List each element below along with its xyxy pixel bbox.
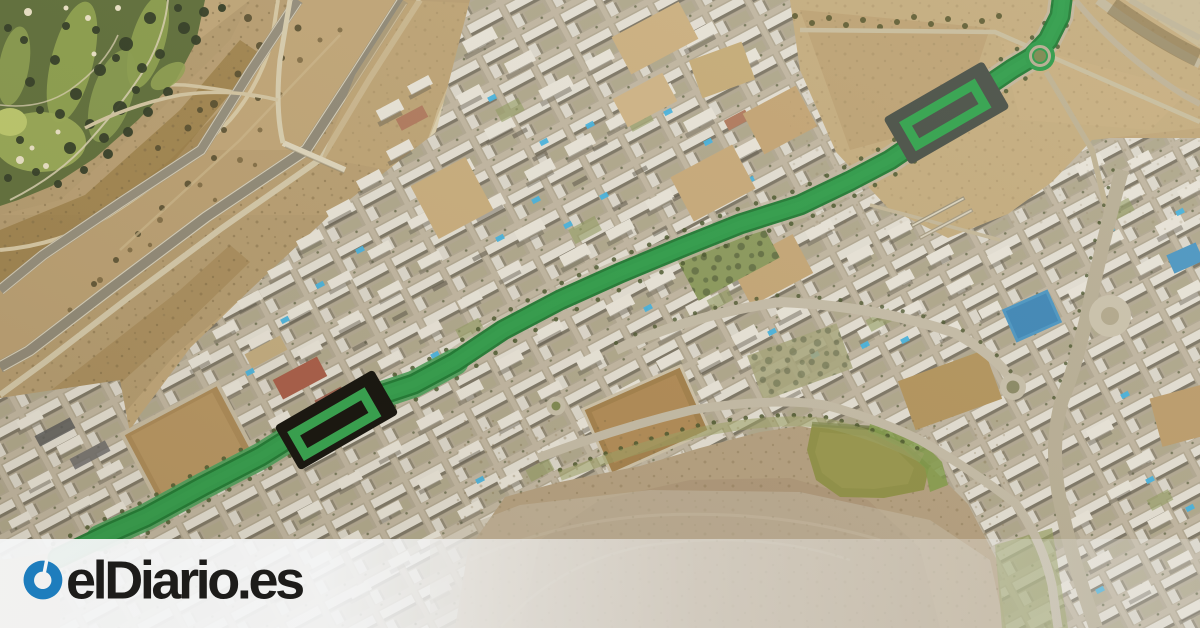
svg-text:elDiario.es: elDiario.es: [66, 551, 303, 611]
